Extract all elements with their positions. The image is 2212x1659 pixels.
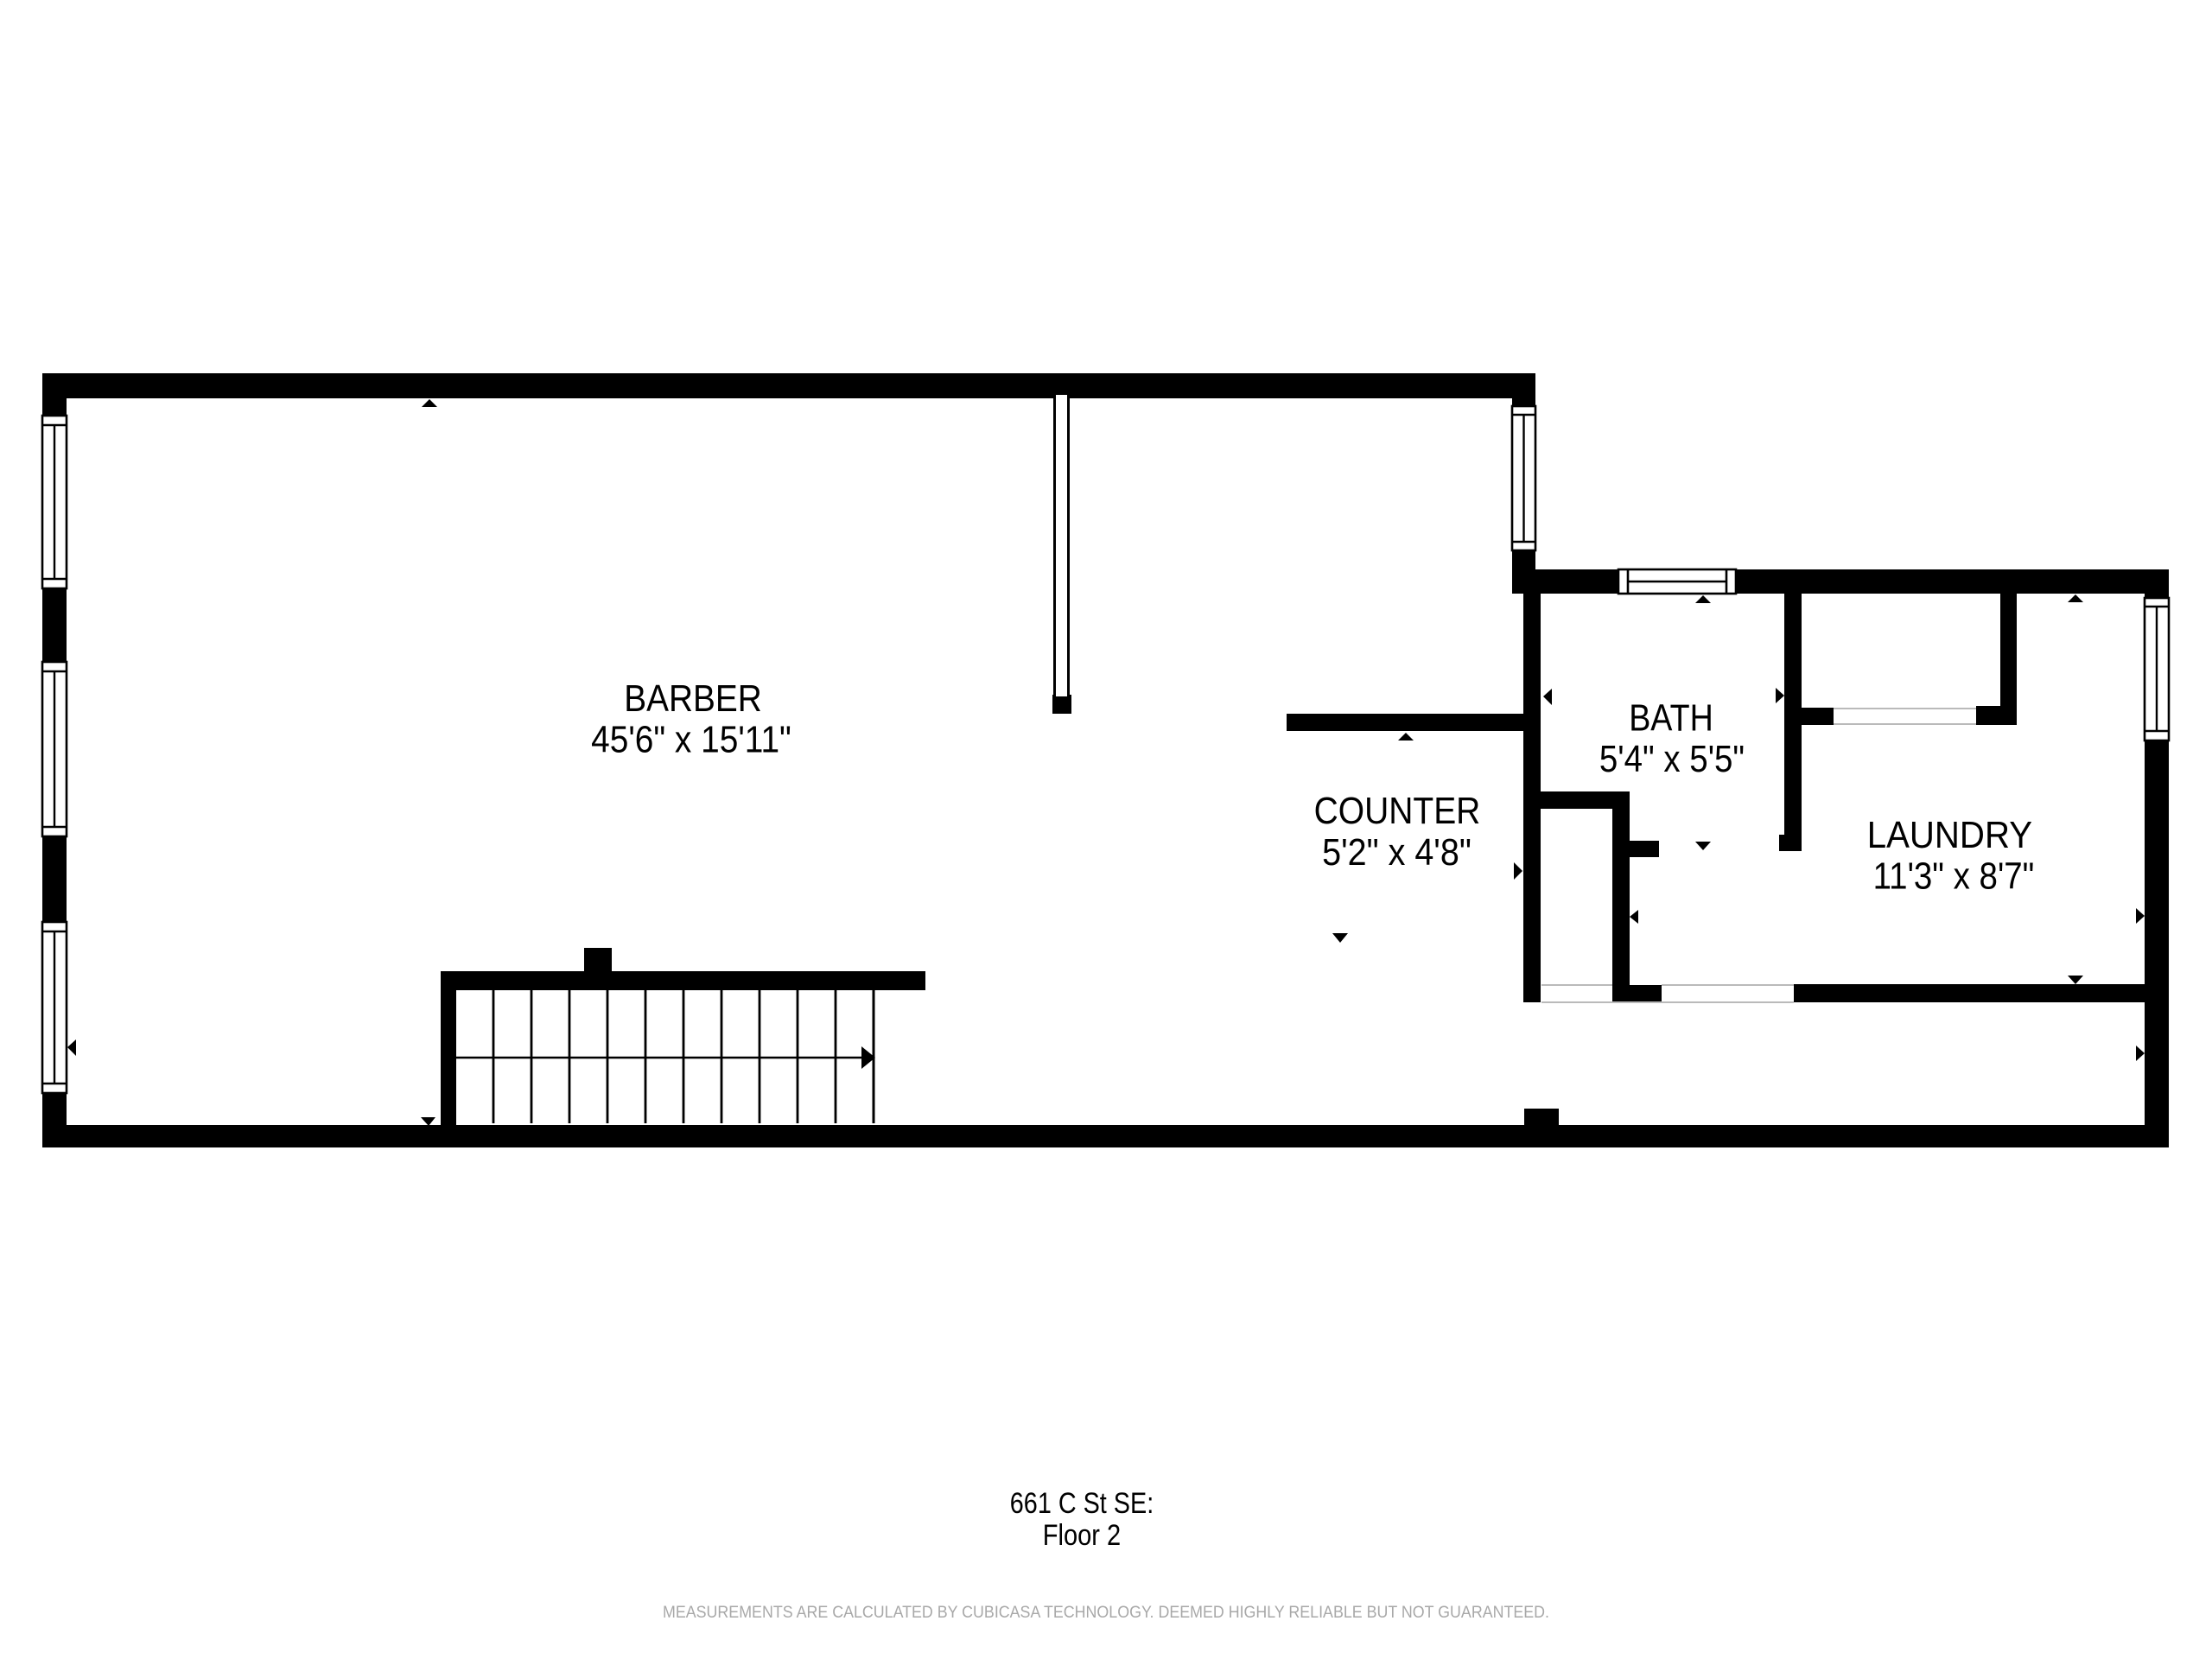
svg-text:5'2" x 4'8": 5'2" x 4'8" <box>1322 831 1471 874</box>
svg-text:661 C St SE:: 661 C St SE: <box>1010 1487 1154 1520</box>
svg-text:LAUNDRY: LAUNDRY <box>1867 814 2032 856</box>
svg-text:COUNTER: COUNTER <box>1314 790 1481 832</box>
svg-text:Floor 2: Floor 2 <box>1043 1519 1121 1552</box>
svg-text:MEASUREMENTS ARE CALCULATED BY: MEASUREMENTS ARE CALCULATED BY CUBICASA … <box>663 1604 1549 1622</box>
svg-text:5'4" x 5'5": 5'4" x 5'5" <box>1599 738 1745 780</box>
svg-text:BARBER: BARBER <box>624 677 762 720</box>
svg-text:45'6" x 15'11": 45'6" x 15'11" <box>591 719 791 761</box>
svg-text:11'3" x 8'7": 11'3" x 8'7" <box>1873 855 2035 898</box>
svg-text:BATH: BATH <box>1629 696 1713 739</box>
